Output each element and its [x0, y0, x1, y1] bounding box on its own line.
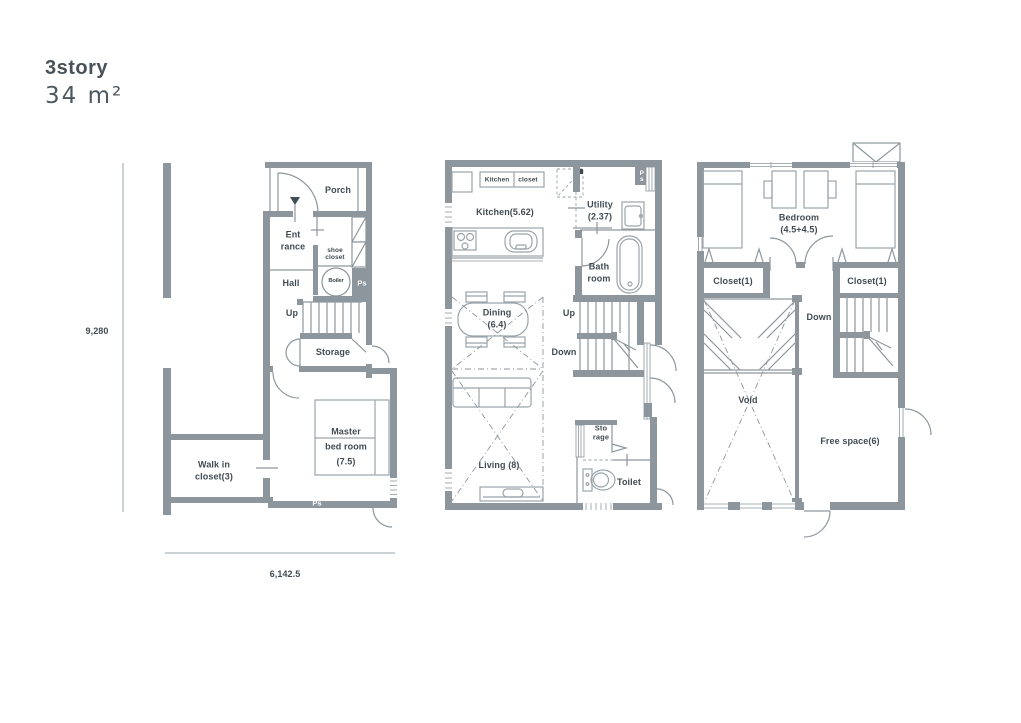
door-arc — [905, 409, 931, 435]
desks — [764, 171, 836, 208]
label-bedroom: Bedroom (4.5+4.5) — [779, 212, 819, 235]
label-shoe-closet: shoe closet — [325, 247, 344, 261]
label-utility: Utility (2.37) — [587, 199, 613, 222]
dimension-height: 9,280 — [85, 326, 108, 338]
label-bathroom: Bath room — [588, 261, 611, 284]
label-porch: Porch — [325, 185, 351, 197]
label-closet-right: Closet(1) — [847, 276, 886, 288]
label-living: Living (8) — [479, 460, 520, 472]
kitchen-counter — [452, 228, 543, 261]
door-arc — [650, 345, 676, 371]
label-hall: Hall — [283, 278, 300, 290]
label-void: Void — [738, 395, 757, 407]
tv-board — [480, 487, 543, 501]
site-wall — [163, 163, 171, 298]
door-arc — [373, 508, 392, 527]
label-storage-2f: Sto rage — [593, 424, 609, 441]
label-free-space: Free space(6) — [820, 436, 879, 448]
label-up-2f: Up — [563, 308, 575, 320]
stove — [454, 231, 476, 250]
door-arc — [372, 346, 389, 363]
entrance-marker-icon — [290, 197, 300, 205]
label-ps-1f-top: Ps — [357, 280, 366, 289]
floor3-plan — [697, 143, 931, 537]
entrance-door-arc — [278, 173, 318, 213]
label-boiler: Boiler — [328, 278, 343, 286]
sofa — [453, 378, 531, 407]
label-walk-in-closet: Walk in closet(3) — [195, 459, 233, 482]
dimension-width: 6,142.5 — [270, 569, 301, 581]
drawing-title: 3story — [45, 57, 108, 80]
label-closet-left: Closet(1) — [713, 276, 752, 288]
label-down-2f: Down — [552, 347, 577, 359]
door-arc — [657, 489, 673, 505]
refrigerator — [452, 172, 472, 192]
door-arc — [650, 378, 675, 403]
floor2-stairs — [573, 295, 644, 377]
floorplan-canvas: 3story 34 m² 9,280 6,142.5 Porch Ent ran… — [0, 0, 1021, 723]
label-master-bedroom: Master bed room (7.5) — [325, 425, 367, 470]
floorplan-drawing — [0, 0, 1021, 723]
door-arc — [805, 236, 833, 264]
door-arc — [273, 372, 299, 398]
label-kitchen-closet-right: closet — [518, 176, 537, 183]
label-ps-2f: Ps — [638, 170, 645, 182]
label-down-3f: Down — [807, 312, 832, 324]
site-wall — [163, 368, 171, 515]
floor3-stairs — [833, 298, 905, 378]
bed-left — [703, 171, 742, 248]
bed-right — [856, 171, 895, 248]
toilet-fixture — [583, 469, 615, 491]
label-ps-1f-bottom: Ps — [312, 500, 321, 509]
label-entrance: Ent rance — [281, 229, 306, 252]
washing-machine — [622, 202, 644, 229]
label-dining: Dining (6.4) — [483, 307, 512, 330]
label-kitchen-closet-left: Kitchen — [485, 176, 510, 183]
label-toilet: Toilet — [617, 477, 641, 489]
door-arc — [804, 511, 830, 537]
balcony-symbol — [853, 143, 900, 162]
label-kitchen: Kitchen(5.62) — [476, 207, 534, 219]
bathtub — [617, 236, 642, 293]
drawing-area: 34 m² — [45, 83, 123, 109]
door-arc — [770, 238, 796, 264]
label-storage-1f: Storage — [316, 347, 350, 359]
door-flag — [612, 444, 626, 452]
label-up-1f: Up — [286, 308, 298, 320]
